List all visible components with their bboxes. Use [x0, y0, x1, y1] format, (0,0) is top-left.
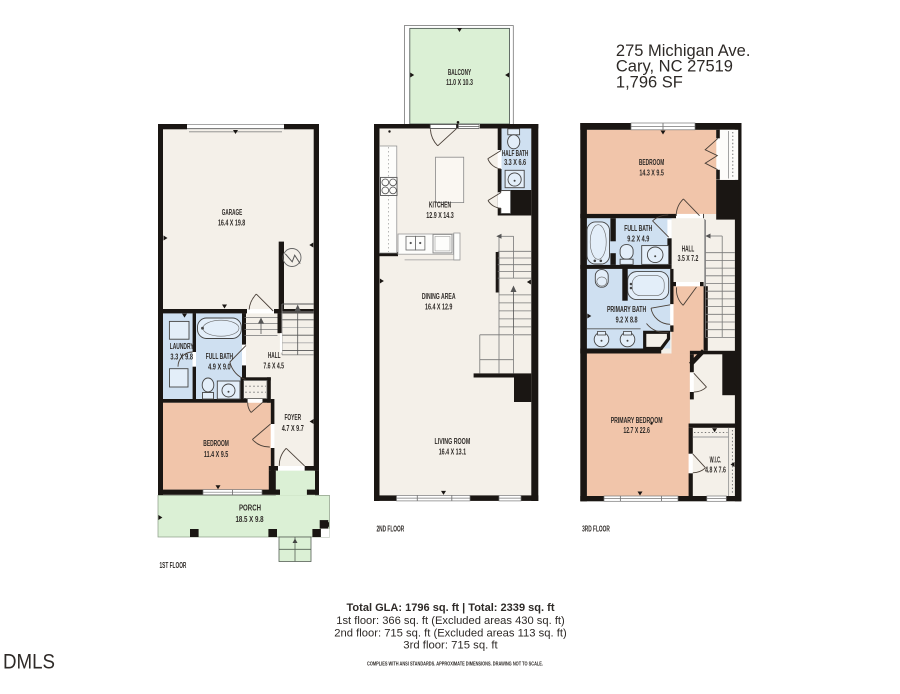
svg-text:18.5 X 9.8: 18.5 X 9.8	[235, 514, 263, 524]
svg-text:11.0 X 10.3: 11.0 X 10.3	[446, 77, 473, 87]
svg-text:LIVING ROOM: LIVING ROOM	[435, 436, 471, 446]
svg-text:DMLS: DMLS	[3, 651, 55, 674]
svg-text:PRIMARY BATH: PRIMARY BATH	[607, 304, 646, 314]
svg-text:12.7 X 22.6: 12.7 X 22.6	[623, 425, 650, 435]
svg-text:9.2 X 8.8: 9.2 X 8.8	[616, 315, 638, 325]
svg-text:4.9 X 9.0: 4.9 X 9.0	[208, 361, 231, 371]
svg-text:7.6 X 4.5: 7.6 X 4.5	[263, 361, 284, 371]
svg-text:DINING AREA: DINING AREA	[422, 291, 456, 301]
svg-text:16.4 X 12.9: 16.4 X 12.9	[425, 302, 453, 312]
svg-text:KITCHEN: KITCHEN	[429, 200, 451, 210]
svg-text:3rd floor: 715 sq. ft: 3rd floor: 715 sq. ft	[403, 640, 497, 652]
svg-text:FULL BATH: FULL BATH	[206, 351, 233, 361]
svg-text:PORCH: PORCH	[239, 502, 261, 512]
svg-text:3.3 X 6.6: 3.3 X 6.6	[504, 157, 526, 167]
svg-text:11.4 X 9.5: 11.4 X 9.5	[204, 449, 229, 459]
svg-text:W.I.C.: W.I.C.	[710, 455, 722, 465]
svg-text:4.8 X 7.6: 4.8 X 7.6	[705, 464, 726, 474]
svg-text:BALCONY: BALCONY	[448, 67, 471, 77]
svg-text:PRIMARY BEDROOM: PRIMARY BEDROOM	[611, 415, 663, 425]
svg-text:FOYER: FOYER	[284, 412, 301, 422]
svg-text:BEDROOM: BEDROOM	[203, 438, 229, 448]
svg-text:LAUNDRY: LAUNDRY	[170, 341, 194, 351]
svg-text:9.2 X 4.9: 9.2 X 4.9	[627, 233, 649, 243]
svg-text:Total GLA: 1796 sq. ft | Total: Total GLA: 1796 sq. ft | Total: 2339 sq.…	[347, 602, 555, 614]
svg-text:4.7 X 9.7: 4.7 X 9.7	[282, 423, 304, 433]
svg-text:1ST FLOOR: 1ST FLOOR	[160, 560, 187, 570]
svg-text:BEDROOM: BEDROOM	[639, 157, 664, 167]
svg-text:1,796 SF: 1,796 SF	[616, 73, 683, 91]
svg-text:HALL: HALL	[268, 350, 281, 360]
svg-text:GARAGE: GARAGE	[222, 207, 243, 217]
svg-text:16.4 X 19.8: 16.4 X 19.8	[218, 217, 245, 227]
svg-text:FULL BATH: FULL BATH	[624, 223, 652, 233]
svg-text:3.3 X 9.8: 3.3 X 9.8	[170, 352, 193, 362]
svg-text:3.5 X 7.2: 3.5 X 7.2	[678, 253, 699, 263]
svg-text:12.9 X 14.3: 12.9 X 14.3	[426, 210, 454, 220]
svg-text:2ND FLOOR: 2ND FLOOR	[377, 524, 405, 534]
svg-text:2nd floor: 715 sq. ft (Exclude: 2nd floor: 715 sq. ft (Excluded areas 11…	[334, 628, 566, 640]
svg-text:COMPLIES WITH ANSI STANDARDS.: COMPLIES WITH ANSI STANDARDS. APPROXIMAT…	[367, 662, 543, 668]
svg-text:14.3 X 9.5: 14.3 X 9.5	[639, 167, 664, 177]
svg-text:3RD FLOOR: 3RD FLOOR	[582, 524, 610, 534]
svg-text:1st floor: 366 sq. ft (Exclude: 1st floor: 366 sq. ft (Excluded areas 43…	[336, 615, 565, 627]
svg-text:16.4 X 13.1: 16.4 X 13.1	[439, 446, 467, 456]
